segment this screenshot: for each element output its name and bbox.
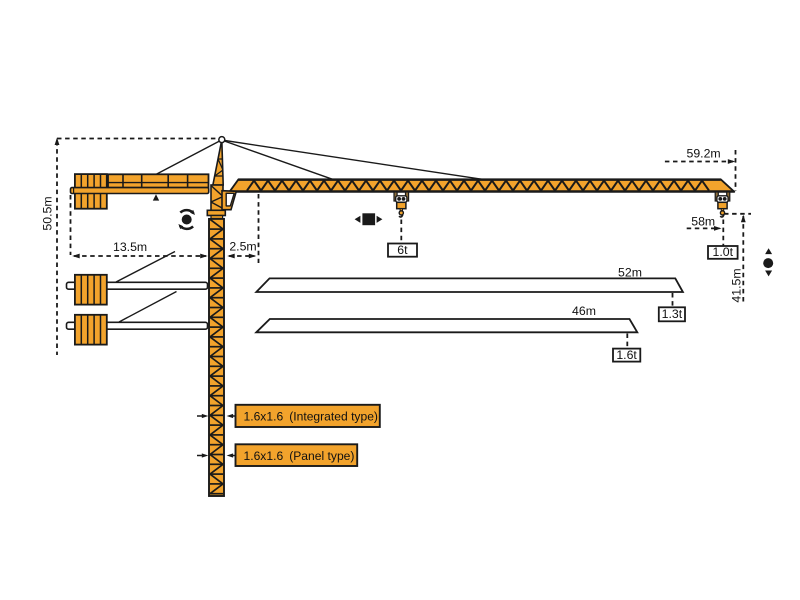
svg-text:13.5m: 13.5m [113, 240, 147, 254]
svg-text:52m: 52m [618, 266, 642, 280]
svg-text:1.0t: 1.0t [713, 245, 734, 259]
svg-text:1.6t: 1.6t [616, 348, 637, 362]
svg-text:58m: 58m [691, 215, 715, 229]
svg-text:6t: 6t [397, 243, 408, 257]
svg-text:50.5m: 50.5m [40, 196, 54, 230]
svg-text:41.5m: 41.5m [730, 268, 744, 302]
svg-text:1.3t: 1.3t [662, 307, 683, 321]
svg-text:59.2m: 59.2m [687, 147, 721, 161]
svg-text:46m: 46m [572, 304, 596, 318]
svg-text:2.5m: 2.5m [229, 239, 256, 253]
svg-text:1.6x1.6 (Panel type): 1.6x1.6 (Panel type) [244, 449, 355, 463]
svg-text:1.6x1.6 (Integrated type): 1.6x1.6 (Integrated type) [244, 410, 378, 424]
